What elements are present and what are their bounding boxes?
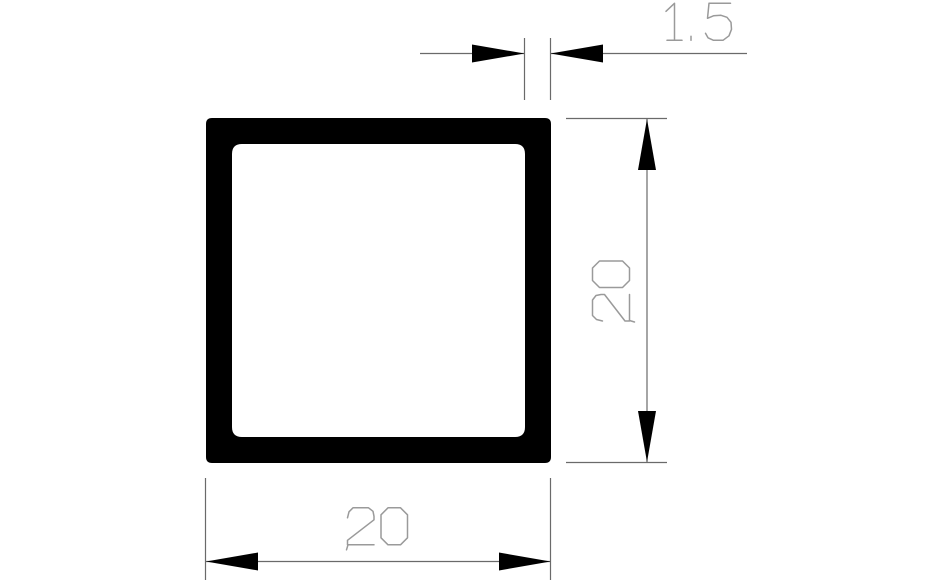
wall-thickness-dimension — [420, 3, 747, 100]
arrowhead-down-icon — [638, 411, 656, 462]
outer-width-dimension — [206, 478, 551, 580]
arrowhead-up-icon — [638, 119, 656, 170]
outer-width-label — [347, 508, 408, 550]
arrowhead-left-icon — [206, 553, 258, 571]
arrowhead-left-icon — [551, 45, 604, 63]
outer-height-label — [593, 261, 635, 322]
outer-height-dimension — [566, 119, 667, 463]
arrowhead-right-icon — [472, 45, 525, 63]
wall-thickness-label — [666, 3, 732, 40]
technical-drawing — [0, 0, 950, 583]
tube-profile — [206, 118, 551, 463]
drawing-canvas — [0, 0, 950, 583]
arrowhead-right-icon — [499, 553, 551, 571]
